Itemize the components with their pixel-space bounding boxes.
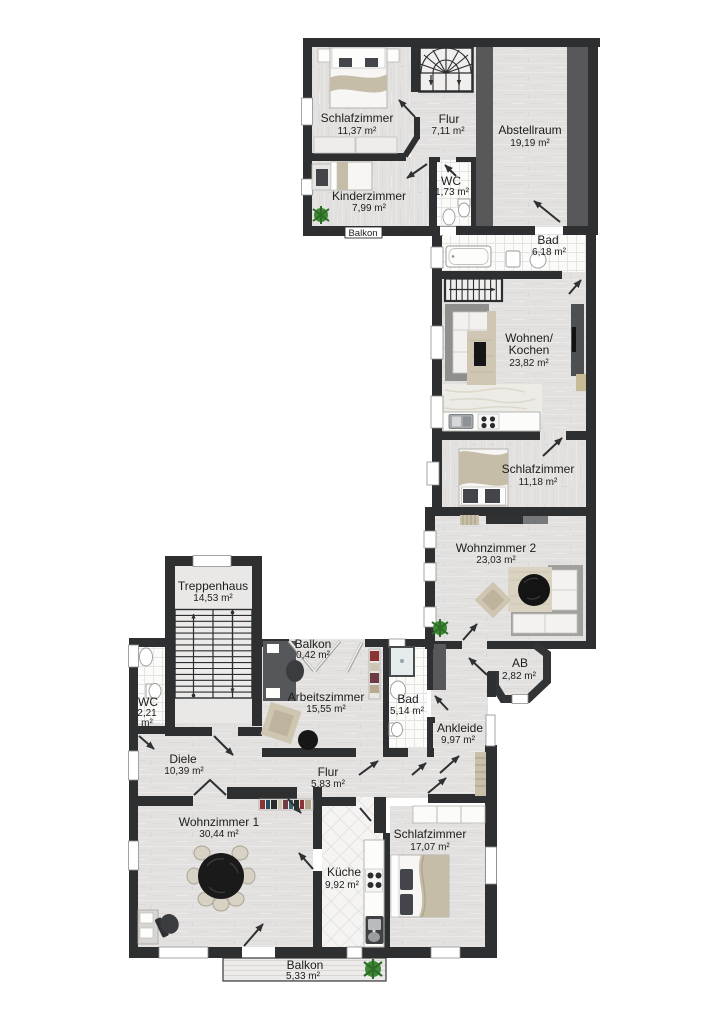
svg-text:Wohnzimmer 2: Wohnzimmer 2 <box>456 541 537 555</box>
svg-text:2,82 m²: 2,82 m² <box>502 671 537 682</box>
svg-text:14,53 m²: 14,53 m² <box>193 593 233 604</box>
svg-text:Ankleide: Ankleide <box>437 721 483 735</box>
svg-text:11,18 m²: 11,18 m² <box>519 477 558 488</box>
svg-text:Kinderzimmer: Kinderzimmer <box>332 189 406 203</box>
svg-text:Bad: Bad <box>397 692 418 706</box>
svg-text:Wohnzimmer 1: Wohnzimmer 1 <box>179 815 260 829</box>
svg-text:Balkon: Balkon <box>348 228 377 239</box>
svg-text:Kochen: Kochen <box>509 343 550 357</box>
svg-text:Balkon: Balkon <box>287 958 324 972</box>
svg-text:10,39 m²: 10,39 m² <box>164 766 204 777</box>
svg-text:AB: AB <box>512 656 528 670</box>
svg-text:1,73 m²: 1,73 m² <box>435 187 470 198</box>
svg-text:WC: WC <box>138 695 158 709</box>
svg-text:0,42 m²: 0,42 m² <box>296 650 331 661</box>
svg-text:Treppenhaus: Treppenhaus <box>178 579 248 593</box>
svg-text:Arbeitszimmer: Arbeitszimmer <box>288 690 365 704</box>
svg-text:5,33 m²: 5,33 m² <box>286 971 321 982</box>
svg-text:Bad: Bad <box>537 233 558 247</box>
svg-text:Schlafzimmer: Schlafzimmer <box>321 111 394 125</box>
svg-text:9,97 m²: 9,97 m² <box>441 735 476 746</box>
svg-text:9,92 m²: 9,92 m² <box>325 880 360 891</box>
svg-text:6,18 m²: 6,18 m² <box>532 247 567 258</box>
svg-text:Flur: Flur <box>439 112 460 126</box>
svg-text:m²: m² <box>141 718 153 729</box>
svg-text:30,44 m²: 30,44 m² <box>199 829 239 840</box>
svg-text:17,07 m²: 17,07 m² <box>410 842 450 853</box>
svg-text:11,37 m²: 11,37 m² <box>338 126 377 137</box>
svg-text:Diele: Diele <box>169 752 197 766</box>
svg-text:5,14 m²: 5,14 m² <box>390 706 425 717</box>
svg-text:Balkon: Balkon <box>295 637 332 651</box>
svg-text:Flur: Flur <box>318 765 339 779</box>
svg-text:7,99 m²: 7,99 m² <box>352 203 387 214</box>
svg-text:23,82 m²: 23,82 m² <box>509 358 549 369</box>
svg-text:Küche: Küche <box>327 865 361 879</box>
svg-text:WC: WC <box>441 174 461 188</box>
svg-text:Schlafzimmer: Schlafzimmer <box>394 827 467 841</box>
svg-text:7,11 m²: 7,11 m² <box>431 126 465 137</box>
svg-text:Schlafzimmer: Schlafzimmer <box>502 462 575 476</box>
svg-text:15,55 m²: 15,55 m² <box>306 704 346 715</box>
svg-text:5,83 m²: 5,83 m² <box>311 779 346 790</box>
svg-text:Abstellraum: Abstellraum <box>498 123 561 137</box>
svg-text:23,03 m²: 23,03 m² <box>476 555 516 566</box>
svg-text:19,19 m²: 19,19 m² <box>510 138 550 149</box>
